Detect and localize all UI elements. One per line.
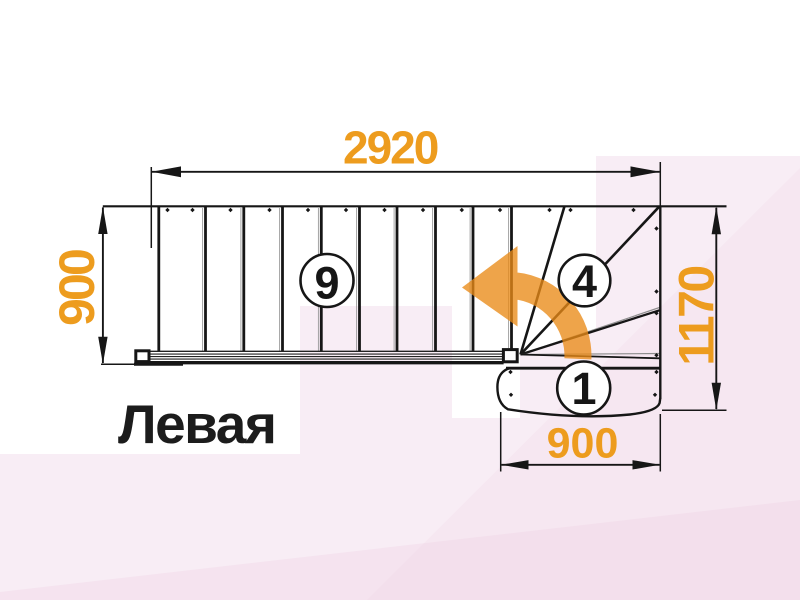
svg-text:1: 1 [571, 363, 596, 414]
svg-text:9: 9 [314, 258, 339, 309]
svg-text:4: 4 [572, 256, 597, 307]
svg-text:900: 900 [547, 420, 619, 468]
svg-text:900: 900 [49, 250, 105, 326]
svg-text:2920: 2920 [343, 122, 438, 174]
svg-text:1170: 1170 [669, 267, 725, 366]
svg-text:Левая: Левая [118, 393, 275, 455]
